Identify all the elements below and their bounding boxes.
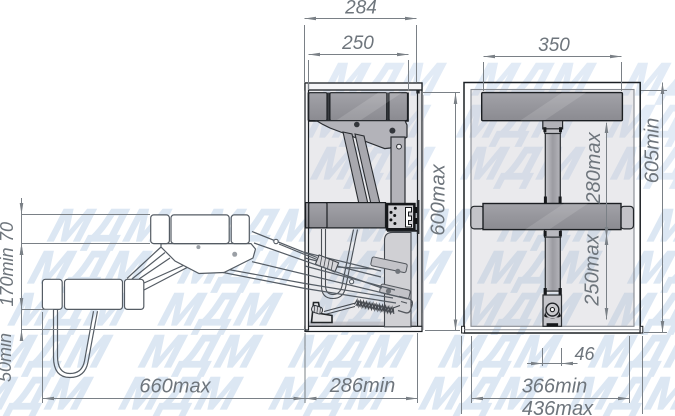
svg-text:280max: 280max: [583, 131, 605, 204]
svg-text:50min: 50min: [0, 333, 15, 382]
svg-text:286min: 286min: [329, 375, 396, 397]
svg-text:250: 250: [341, 33, 374, 54]
svg-text:660max: 660max: [139, 376, 211, 398]
svg-text:70: 70: [0, 222, 17, 242]
svg-text:170min: 170min: [0, 247, 17, 306]
svg-text:250max: 250max: [582, 233, 604, 306]
svg-text:600max: 600max: [428, 163, 450, 235]
svg-text:605min: 605min: [642, 118, 664, 184]
svg-text:350: 350: [538, 35, 570, 56]
svg-text:366min: 366min: [522, 376, 588, 398]
svg-text:436max: 436max: [522, 398, 594, 416]
svg-text:284: 284: [344, 0, 377, 19]
svg-text:46: 46: [574, 344, 595, 364]
